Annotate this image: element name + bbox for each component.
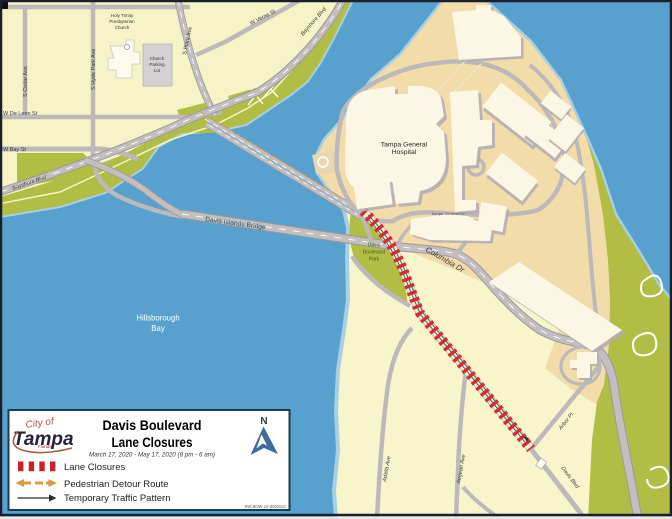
svg-text:Davis: Davis: [368, 243, 381, 249]
svg-text:S Hyde Park Ave: S Hyde Park Ave: [91, 49, 97, 90]
svg-text:March 17, 2020 - May 17, 2020: March 17, 2020 - May 17, 2020 (8 pm - 6 …: [89, 453, 215, 459]
svg-text:S Cedar Ave: S Cedar Ave: [23, 66, 29, 97]
svg-text:W De Leon St: W De Leon St: [3, 111, 38, 117]
svg-text:Boulevard: Boulevard: [363, 250, 386, 256]
svg-text:Davis Boulevard: Davis Boulevard: [103, 417, 202, 433]
svg-text:Hillsborough: Hillsborough: [136, 314, 179, 323]
svg-text:Ref:BOW-19-0002021: Ref:BOW-19-0002021: [245, 504, 286, 509]
svg-text:Bay: Bay: [151, 324, 165, 333]
svg-text:Holy Trinity: Holy Trinity: [111, 13, 134, 18]
svg-text:Hospital: Hospital: [392, 149, 417, 156]
svg-text:Florida: Florida: [38, 444, 52, 449]
svg-text:Lane Closures: Lane Closures: [64, 462, 126, 473]
svg-text:Tampa General: Tampa General: [381, 142, 428, 149]
svg-text:Pedestrian Detour Route: Pedestrian Detour Route: [64, 479, 169, 490]
svg-text:Parking: Parking: [149, 62, 165, 67]
svg-text:Lot: Lot: [154, 68, 161, 73]
svg-text:Lane Closures: Lane Closures: [112, 434, 193, 450]
svg-text:N: N: [260, 416, 267, 427]
svg-text:Park: Park: [369, 257, 380, 263]
svg-text:W Bay St: W Bay St: [3, 147, 26, 153]
svg-text:Church: Church: [115, 25, 130, 30]
svg-text:Temporary Traffic Pattern: Temporary Traffic Pattern: [64, 493, 170, 504]
svg-text:Presbyterian: Presbyterian: [109, 19, 135, 24]
svg-text:Church: Church: [150, 56, 165, 61]
svg-text:Tampa General Cir: Tampa General Cir: [431, 211, 465, 216]
